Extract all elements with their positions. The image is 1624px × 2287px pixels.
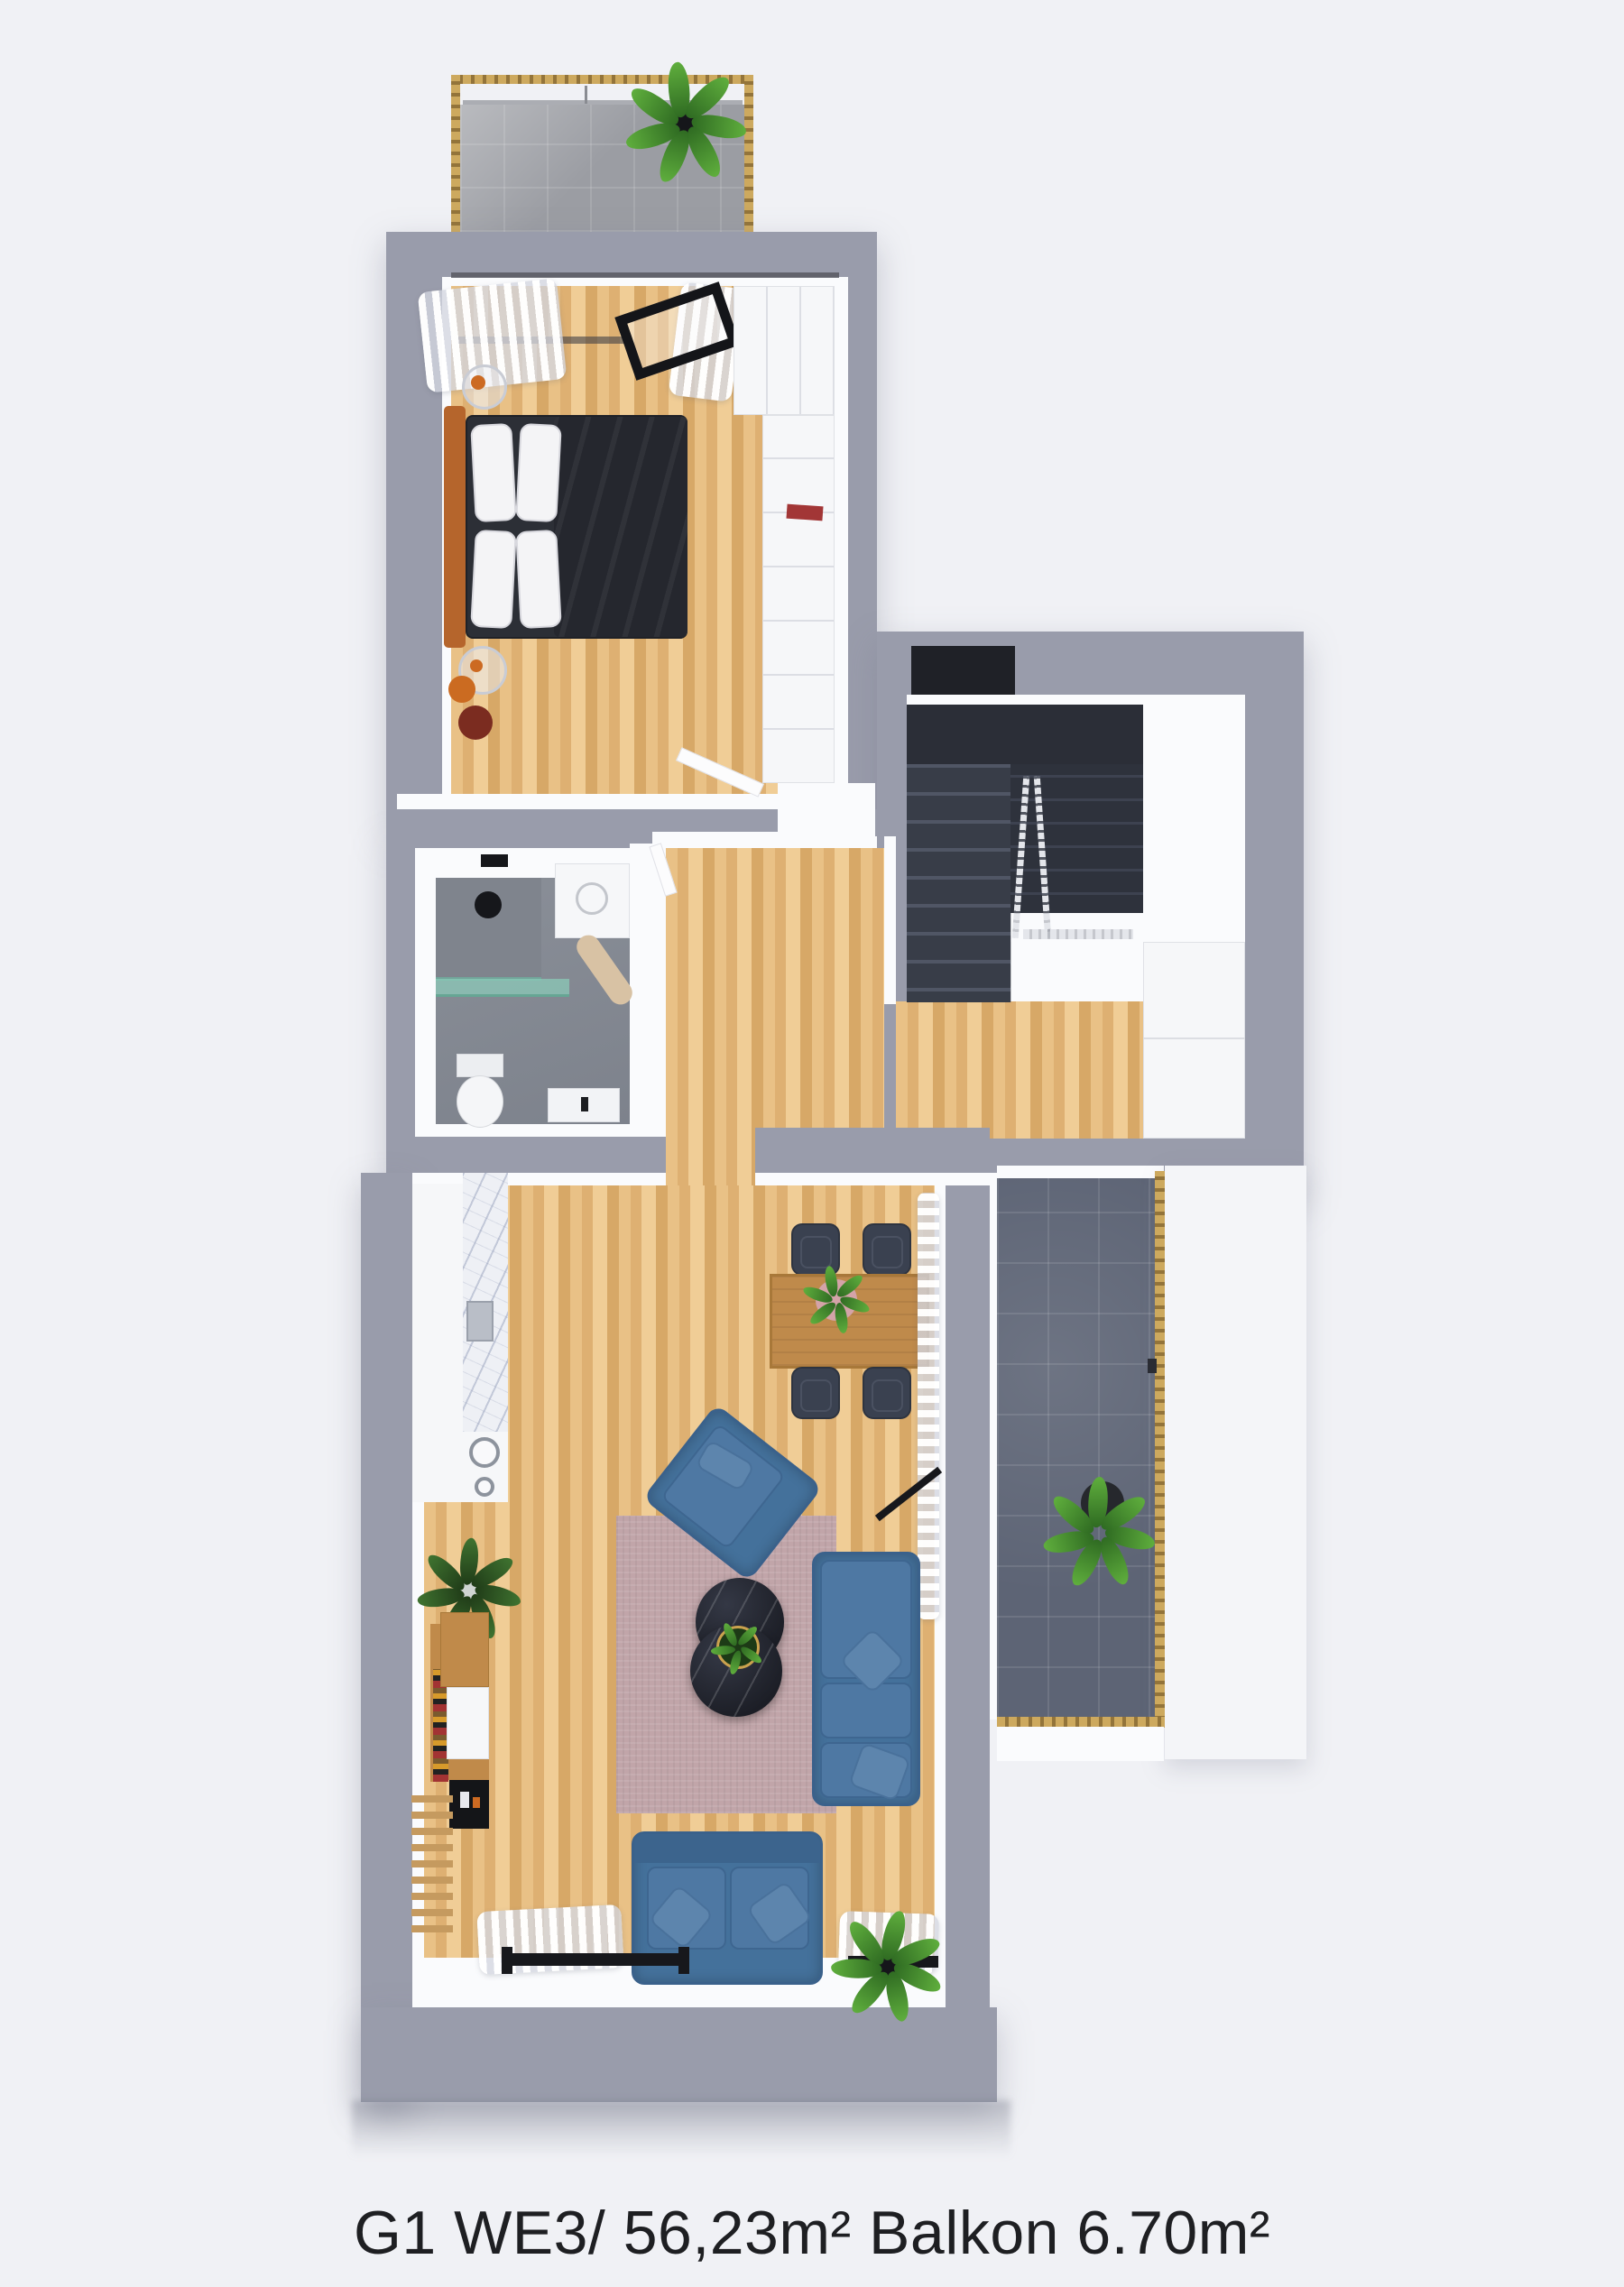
dining-table-plant xyxy=(807,1270,866,1330)
stair-cabinet xyxy=(1143,942,1245,1139)
slat-rack xyxy=(411,1786,453,1932)
shower-fixture xyxy=(481,854,508,867)
washing-machine-door xyxy=(576,882,608,915)
balcony-plant xyxy=(632,70,738,177)
doorway-wall-stub xyxy=(875,809,907,836)
bed-pillow xyxy=(515,530,562,629)
sofa-right xyxy=(812,1552,920,1806)
media-unit-decor xyxy=(460,1792,469,1808)
kitchen-cabinet-row xyxy=(412,1184,463,1502)
stove-burner xyxy=(469,1437,500,1468)
sideboard-lower xyxy=(448,1759,489,1780)
bed-headboard xyxy=(444,406,466,648)
bedroom-stool xyxy=(448,676,475,703)
balcony-right-outer-slab xyxy=(1165,1166,1306,1759)
wardrobe-red-item xyxy=(786,504,823,521)
balcony-right-railing-bottom xyxy=(997,1717,1165,1727)
window-frame-foot xyxy=(678,1947,689,1974)
media-unit xyxy=(449,1780,489,1829)
living-wall-right xyxy=(946,1128,990,2102)
wardrobe-top xyxy=(734,286,835,415)
railing-bracket xyxy=(1148,1359,1157,1373)
stair-upper-landing xyxy=(907,705,1143,764)
living-room-plant xyxy=(839,1918,937,2015)
stair-railing-base xyxy=(1023,929,1133,939)
balcony-right-side-lining xyxy=(990,1178,997,1720)
sideboard-middle xyxy=(447,1687,489,1759)
hall-dining-wall xyxy=(755,1128,946,1173)
balcony-top-railing-left xyxy=(451,75,460,234)
nightstand xyxy=(462,364,507,410)
floor-plan-image: G1 WE3/ 56,23m² Balkon 6.70m² xyxy=(0,0,1624,2287)
balcony-top-rail-post xyxy=(585,86,587,104)
coffee-table-plant xyxy=(715,1624,761,1671)
passage-floor xyxy=(666,1173,755,1185)
bed-duvet xyxy=(554,417,687,637)
dining-chair xyxy=(863,1367,911,1419)
hallway-floor xyxy=(666,848,884,1173)
media-unit-decor xyxy=(473,1797,480,1808)
nightstand-decor xyxy=(471,375,485,390)
kitchen-sink xyxy=(466,1301,494,1342)
bedroom-round-rug xyxy=(458,705,493,740)
balcony-top-railing-right xyxy=(744,75,753,234)
balcony-right-floor xyxy=(997,1178,1155,1719)
dining-chair xyxy=(863,1223,911,1276)
stair-landing-floor xyxy=(896,1001,1143,1139)
stove-burner xyxy=(475,1477,494,1497)
balcony-right-top-lining xyxy=(997,1166,1164,1178)
living-wall-left xyxy=(361,1173,412,2102)
bedroom-doorway xyxy=(778,783,875,848)
stair-opening xyxy=(911,646,1015,695)
sink-faucet xyxy=(581,1097,588,1111)
plan-shadow xyxy=(352,2100,1010,2158)
bedroom-bottom-lining xyxy=(397,794,794,809)
nightstand-decor xyxy=(470,659,483,672)
caption: G1 WE3/ 56,23m² Balkon 6.70m² xyxy=(0,2198,1624,2268)
bedroom-bottom-wall xyxy=(386,809,794,832)
balcony-door-curtain xyxy=(918,1193,939,1619)
sideboard xyxy=(440,1612,489,1687)
shower-head-icon xyxy=(475,891,502,918)
balcony-right-plant xyxy=(1050,1485,1148,1582)
bedroom-window-frame xyxy=(451,272,839,278)
window-frame xyxy=(505,1953,686,1966)
stair-cabinet-seam xyxy=(1143,1037,1245,1039)
bed-pillow xyxy=(470,423,517,522)
balcony-right-bottom-lining xyxy=(997,1727,1164,1761)
wardrobe-side xyxy=(762,415,835,783)
stair-side-lining xyxy=(884,836,896,1004)
balcony-right-railing xyxy=(1155,1171,1165,1728)
toilet xyxy=(457,1075,503,1128)
bed-pillow xyxy=(470,530,517,629)
glass-shelf xyxy=(436,979,569,997)
toilet-tank xyxy=(457,1054,503,1077)
stair-flight-left xyxy=(907,764,1010,1002)
window-frame-foot xyxy=(502,1947,512,1974)
dining-chair xyxy=(791,1367,840,1419)
bed-pillow xyxy=(515,423,562,522)
